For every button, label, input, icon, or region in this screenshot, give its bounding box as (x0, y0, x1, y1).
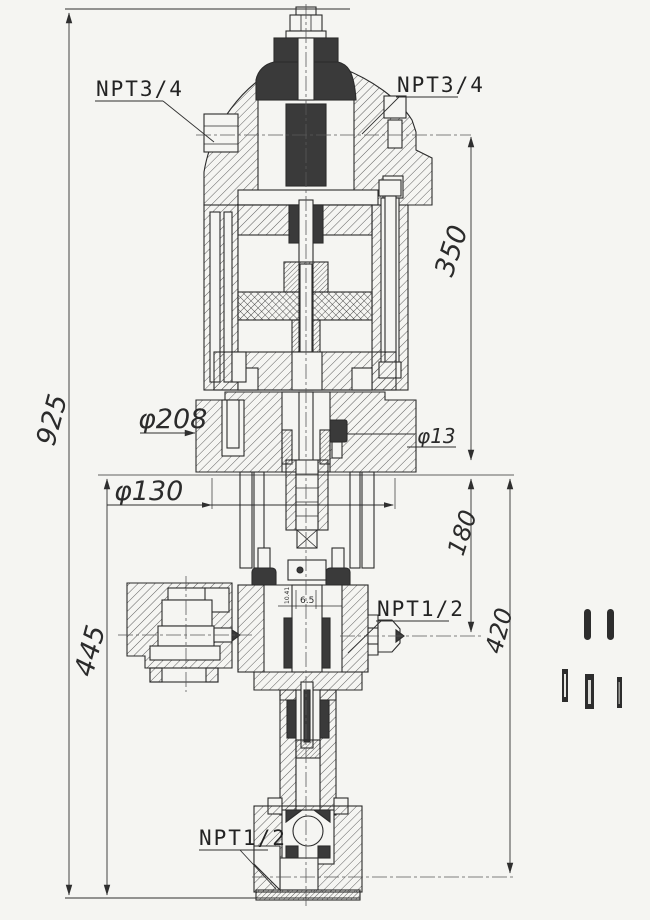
detail-inset (127, 583, 240, 682)
tie-rod-top-nut (379, 180, 401, 196)
guide-column-left (240, 472, 252, 568)
right-port-pocket (384, 96, 406, 118)
dim-180-text: 180 (442, 507, 483, 559)
barrel-gland (296, 740, 320, 758)
valve-base (256, 890, 360, 900)
dim-130-arrow-right (384, 502, 394, 508)
npt34-right-label: NPT3/4 (397, 73, 485, 97)
scan-mark (584, 609, 591, 640)
scan-mark (607, 609, 614, 640)
dim-445-text: 445 (69, 622, 112, 680)
suction-barrel (280, 682, 336, 815)
dim-1041-text: 10.41 (284, 587, 291, 604)
npt12-side-label: NPT1/2 (377, 597, 465, 621)
dim-130-text: φ130 (114, 476, 183, 507)
npt34-left-label: NPT3/4 (96, 77, 184, 101)
scan-marks (562, 609, 622, 709)
left-port-bore (204, 114, 238, 152)
body-bottom (214, 352, 396, 390)
guide-column-right (362, 472, 374, 568)
drain-tube (232, 352, 246, 382)
dim-925-text: 925 (31, 391, 74, 449)
technical-drawing-canvas: NPT3/4 NPT3/4 NPT1/2 NPT1/2 925 445 350 … (0, 0, 650, 920)
coupling (296, 460, 318, 530)
pump-assembly-section (127, 7, 432, 900)
tie-rod (385, 196, 396, 362)
packing-left-dark (284, 618, 292, 668)
dim-13-text: φ13 (417, 424, 456, 448)
dim-208-text: φ208 (138, 404, 207, 435)
check-ball (293, 816, 323, 846)
npt12-bottom-label: NPT1/2 (199, 826, 287, 850)
yoke-block (288, 560, 326, 580)
dim-65-text: 6.5 (300, 596, 314, 606)
dim-130-arrow-left (202, 502, 212, 508)
scanned-drawing-page: NPT3/4 NPT3/4 NPT1/2 NPT1/2 925 445 350 … (0, 0, 650, 920)
valve-outlet-bore (280, 858, 318, 890)
lower-guide (240, 460, 374, 588)
dim-420-text: 420 (480, 605, 519, 656)
dim-350-text: 350 (429, 222, 474, 281)
packing-right-dark (322, 618, 330, 668)
